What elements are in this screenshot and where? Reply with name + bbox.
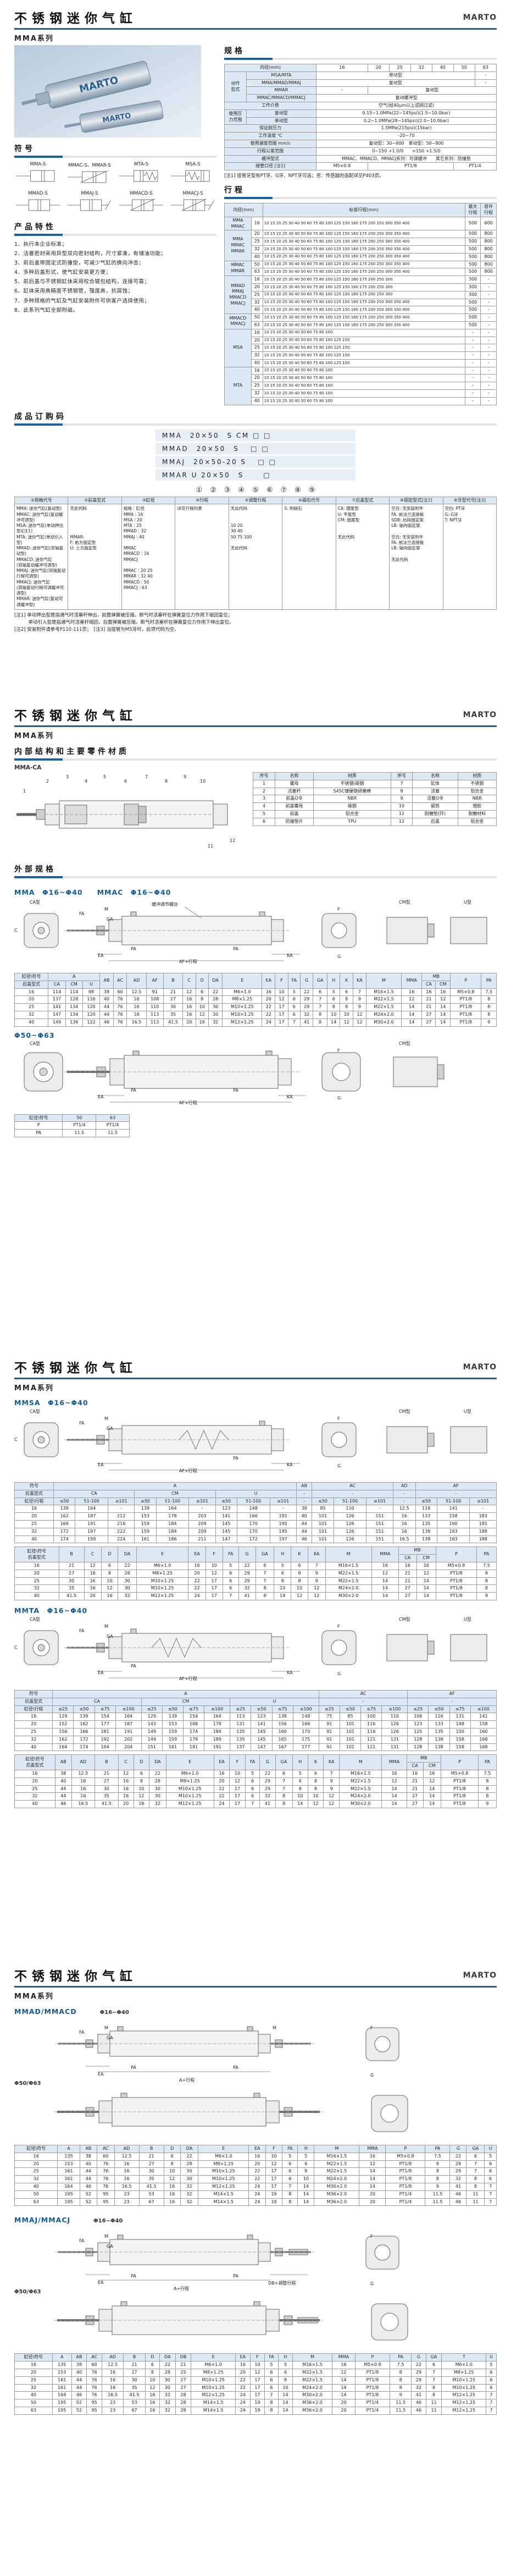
table-header-cell: ≤50	[135, 1498, 156, 1505]
table-cell: 16	[15, 1505, 54, 1513]
table-cell: 500	[465, 314, 481, 322]
table-cell: 164	[204, 1713, 230, 1721]
table-cell: 5	[274, 1562, 291, 1570]
table-cell: M22×1.5	[340, 1785, 382, 1793]
table-cell: 16	[71, 1777, 95, 1785]
table-cell: 16	[145, 2399, 159, 2407]
table-cell: 138	[415, 1535, 437, 1543]
ordering-title: 成品订购码	[14, 411, 497, 422]
table-cell: 197	[75, 1528, 108, 1535]
table-header-cell: 缸径\符号	[15, 973, 48, 981]
symbol-label: MSA-S	[169, 162, 216, 167]
table-cell: -	[465, 344, 481, 352]
table-cell: 详见行程列表	[175, 504, 229, 610]
table-cell: 14	[359, 2168, 386, 2176]
cylinder-symbol-icon	[170, 197, 216, 213]
dim-label: PA	[233, 1088, 238, 1093]
table-cell: 10 15 20 25 30 40 50 60 75 80 100 125 15…	[263, 337, 465, 344]
table-cell: M5×0.8	[316, 163, 368, 170]
table-header-cell: G	[412, 2354, 426, 2362]
table-cell: 16	[422, 988, 436, 996]
dim-label: CM型	[399, 899, 410, 905]
table-cell: 22	[235, 2376, 250, 2384]
table-cell: 12	[401, 996, 421, 1004]
table-cell: 158	[437, 1513, 470, 1521]
table-cell: 17	[266, 2168, 282, 2176]
table-cell: 16	[127, 996, 146, 1004]
table-cell: 10 15 20 25 30 40 50 60 75 80 100 125 15…	[263, 283, 465, 291]
table-cell: MMAC、MMACD、MMACJ系列：可调缓冲 其它系列：防撞垫	[316, 155, 497, 163]
dim-label: G	[337, 1463, 341, 1468]
big-bore-drawing: CA型EAAF+行程KAPAPAFGCM型	[14, 1041, 497, 1112]
table-cell: 29	[300, 1004, 313, 1011]
table-cell: 16.5	[102, 2392, 123, 2399]
table-cell: M16×1.5	[366, 988, 401, 996]
table-cell: 158	[449, 1743, 470, 1751]
table-row: 4041.5201632M12×1.2524177418141212M30×2.…	[15, 1593, 497, 1600]
table-row: MMA MMAC MMAR2010 15 20 25 30 40 50 60 7…	[225, 230, 497, 238]
table-header-cell: F	[230, 1755, 245, 1770]
table-cell: 25	[15, 1004, 48, 1011]
table-cell: M10×1.25	[442, 2376, 486, 2384]
table-row: 2510 15 20 25 30 40 50 60 75 80 100 125 …	[225, 344, 497, 352]
dim-label: KA	[287, 1670, 293, 1675]
table-cell: 10 15 20 25 30 40 50 60 75 80 100 125 15…	[263, 230, 465, 238]
table-cell: 25	[251, 382, 263, 390]
table-row: 32441635161230M10×1.2522176328101012M24×…	[15, 1793, 497, 1801]
table-header-cell: ≤25	[230, 1705, 251, 1713]
table-cell: 螺母	[275, 780, 313, 788]
table-cell: 17	[230, 1793, 245, 1801]
table-cell: 161	[135, 1535, 156, 1543]
table-cell: 17	[230, 1785, 245, 1793]
table-cell: -	[465, 375, 481, 382]
dim-label: AF+行程	[179, 1468, 197, 1474]
table-cell: M16×1.5	[293, 2362, 332, 2369]
table-cell: 110	[146, 1004, 163, 1011]
page-title: 不锈钢迷你气缸	[14, 1357, 497, 1376]
stroke-section: 行程 内径(mm)标准行程(mm)最大 行程容许 行程MMA MMAC1610 …	[224, 184, 497, 405]
table-cell: 17	[275, 1011, 288, 1019]
table-cell: 38	[296, 1505, 312, 1513]
table-cell: 53	[139, 2190, 164, 2198]
table-cell: 12	[275, 996, 288, 1004]
table-cell: 9	[481, 1019, 497, 1026]
table-cell: 7.5	[425, 2153, 450, 2160]
digit-item: ⑨	[309, 486, 315, 494]
table-header-cell: CM	[436, 981, 451, 988]
digit-item: ④	[238, 486, 245, 494]
table-cell: 4	[253, 803, 275, 811]
table-header-cell: KA	[353, 973, 366, 989]
table-cell: 8	[275, 1793, 292, 1801]
dim-label: GA	[107, 2035, 113, 2040]
table-header-cell: ≥101	[270, 1498, 296, 1505]
table-cell: 27	[163, 996, 182, 1004]
cylinder-symbol-icon	[15, 197, 61, 213]
table-cell: 7	[324, 1770, 340, 1777]
dim-label: 4	[85, 779, 87, 784]
table-cell: 27	[422, 1011, 436, 1019]
dim-label: U型	[464, 1408, 471, 1414]
table-cell: 129	[53, 1713, 74, 1721]
table-header-cell: D	[196, 973, 208, 989]
dim-label: U型	[464, 899, 471, 905]
table-row: 4010 15 20 25 30 40 50 60 75 80 100 125 …	[225, 306, 497, 314]
table-cell: 21	[175, 2362, 191, 2369]
page-3: 不锈钢迷你气缸 MARTO MMA系列 MMSA Φ16~Φ40 CA型CFAM…	[0, 1350, 511, 1958]
table-header-cell: P	[436, 1547, 477, 1562]
table-cell: 20	[15, 1513, 54, 1521]
table-header-cell: MMACD MMACJ	[225, 314, 252, 329]
table-cell: M36×2.0	[314, 2198, 359, 2206]
feat-item: 4、多种后盖形式，使气缸安装更方便；	[14, 268, 216, 277]
table-cell: M10×1.25	[223, 1011, 262, 1019]
table-cell: 20	[183, 1019, 196, 1026]
table-cell: 8	[298, 2168, 314, 2176]
data-table: 符号AABACADAF后盖型式CACMU----缸径\行程≤5051-100≥1…	[14, 1482, 497, 1543]
table-cell: PT1/8	[436, 1570, 477, 1577]
specs-note: [注1] 接管牙型有PT牙、G牙、NPT牙可选；另：传感器的选配详见P403页。	[224, 172, 497, 179]
table-header-cell: 缸径\符号	[15, 2145, 58, 2153]
table-cell: 40	[251, 306, 263, 314]
table-cell: 6	[245, 1793, 260, 1801]
mmad-outline-drawing: FAMGAPAPAEAA+行程MFG	[14, 2018, 497, 2078]
table-header-cell: MMA/MMAD/MMAJ	[246, 79, 316, 87]
table-cell: 149	[48, 1019, 65, 1026]
table-cell: PT1/4	[386, 2198, 425, 2206]
symbol-label: MMA-S	[14, 162, 62, 167]
table-cell: 40	[251, 253, 263, 261]
msa-dim-table-2: 缸径\符号 后盖型式BCDDAEEAFFAGGAHKKAMMMAMBPPACAC…	[14, 1546, 497, 1600]
table-cell: 6	[245, 1785, 260, 1793]
table-header-cell: 缸径\符号 后盖型式	[15, 1755, 55, 1770]
mmaj-label: MMAJ/MMACJ	[14, 2216, 70, 2224]
table-cell: 149	[141, 1728, 162, 1736]
table-header-cell: FA	[282, 2145, 298, 2153]
page-2: 不锈钢迷你气缸 MARTO MMA系列 内部结构和主要零件材质 MMA-CA	[0, 697, 511, 1350]
table-cell: 5	[282, 2153, 298, 2160]
data-table: 缸径\符号 后盖型式BCDDAEEAFFAGGAHKKAMMMAMBPPACAC…	[14, 1546, 497, 1600]
table-header-cell: 后盖型式	[15, 1698, 53, 1705]
table-cell: 9	[425, 2183, 450, 2190]
table-cell: -	[465, 397, 481, 405]
table-cell: 44	[71, 2384, 87, 2392]
table-cell: 101	[312, 1520, 334, 1528]
table-cell: 7.5	[390, 2362, 411, 2369]
table-cell: 145	[251, 1728, 272, 1736]
table-cell: M30×2.0	[340, 1801, 382, 1808]
symbol-label: MMACJ-S	[169, 191, 216, 196]
dim-label: 7	[145, 774, 148, 779]
table-cell: 16	[316, 64, 368, 72]
table-cell: 41	[412, 2392, 426, 2399]
table-cell: -	[465, 352, 481, 360]
table-cell: 131	[382, 1736, 408, 1743]
table-cell: 16	[164, 2183, 180, 2190]
table-row: 3216144761635123027M10×1.252217610M24×2.…	[15, 2384, 497, 2392]
digit-item: ⑧	[295, 486, 301, 494]
table-cell: 6	[134, 1770, 149, 1777]
table-cell: 14	[332, 2384, 355, 2392]
outline-drawing-icon	[14, 1041, 495, 1112]
table-cell: 21	[407, 1777, 423, 1785]
table-cell: 209	[189, 1520, 215, 1528]
table-cell: 91	[319, 1736, 340, 1743]
table-cell: PT1/8	[436, 1577, 477, 1585]
table-cell: 29	[260, 1785, 275, 1793]
table-cell: 148	[237, 1505, 270, 1513]
table-cell: 16.5	[114, 2183, 139, 2190]
table-cell: 20	[118, 1801, 134, 1808]
table-header-cell: D	[134, 1755, 149, 1770]
table-cell: -	[481, 337, 497, 344]
table-cell: 12	[324, 1801, 340, 1808]
table-cell: 28	[180, 2160, 198, 2168]
table-cell: 11	[426, 2407, 442, 2414]
table-header-cell: ≤25	[408, 1705, 429, 1713]
table-cell: 170	[237, 1520, 270, 1528]
table-header-cell: 50	[63, 1114, 96, 1122]
table-cell: 10 15 20 25 30 40 50 60 75 80 100 125 15…	[263, 344, 465, 352]
table-cell: 17	[275, 1004, 288, 1011]
table-header-cell: 51-100	[75, 1498, 108, 1505]
table-cell: 27	[175, 2384, 191, 2392]
table-cell: 12	[391, 818, 413, 825]
table-cell: 101	[340, 1728, 360, 1736]
table-header-cell: E	[136, 1547, 188, 1562]
symbol-label: MMAD-S	[14, 191, 62, 196]
mta-size-label: MMTA Φ16~Φ40	[14, 1605, 497, 1615]
table-cell: 172	[54, 1528, 75, 1535]
feat-item: 7、多种规格的气缸及气缸安装附件可供客户选择使用；	[14, 296, 216, 306]
table-cell: 300	[465, 276, 481, 284]
external-dims-section: 外部规格 MMA Φ16~Φ40 MMAC Φ16~Φ40	[14, 863, 497, 1137]
table-cell: 32	[15, 1793, 55, 1801]
table-cell: 14	[359, 2176, 386, 2183]
table-cell: 116	[429, 1713, 449, 1721]
table-cell: M12×1.25	[191, 2392, 236, 2399]
table-cell: 126	[334, 1528, 366, 1535]
table-cell: 216	[108, 1520, 135, 1528]
table-cell: 14	[298, 2198, 314, 2206]
table-cell: 153	[162, 1721, 183, 1729]
table-header-cell: -	[296, 1498, 312, 1505]
table-cell: 17	[266, 2183, 282, 2190]
table-cell: 8	[340, 996, 353, 1004]
table-row: MMACD MMACJ5010 15 20 25 30 40 50 60 75 …	[225, 314, 497, 322]
table-cell: 76	[97, 2168, 114, 2176]
table-cell: -	[481, 276, 497, 284]
table-header-cell: E	[223, 973, 262, 989]
table-cell: 35	[163, 1011, 182, 1019]
table-cell: 21	[422, 1004, 436, 1011]
table-cell: 46	[450, 2190, 466, 2198]
table-cell: 10 15 20 25 30 40 50 60 75 80 100 125 15…	[263, 359, 465, 367]
table-cell: 38	[80, 2153, 97, 2160]
table-cell: 17	[205, 1585, 223, 1593]
title-rule	[14, 28, 497, 30]
table-cell: 27	[398, 1593, 416, 1600]
table-row: MMA/MMAD/MMAJ复动型-	[225, 79, 497, 87]
table-cell: 38	[100, 988, 114, 996]
table-row: 201534076162782825M8×1.25201266M22×1.512…	[15, 2369, 497, 2376]
table-header-cell: AB	[71, 2354, 87, 2362]
table-cell: 9	[308, 1577, 325, 1585]
table-cell: M22×1.5	[293, 2369, 332, 2376]
table-cell: 10 15 20 25 30 40 50 60 75 80 100 125 15…	[263, 245, 465, 253]
table-cell: 6	[223, 1570, 238, 1577]
table-cell: 160	[470, 1728, 496, 1736]
table-cell: 63	[251, 268, 263, 276]
table-cell: 30	[180, 2176, 198, 2183]
table-cell: 179	[184, 1736, 204, 1743]
table-cell: 17	[275, 1019, 288, 1026]
table-cell: 139	[54, 1505, 75, 1513]
table-cell: 159	[135, 1520, 156, 1528]
table-cell: 76	[113, 1011, 127, 1019]
internal-structure-section: 内部结构和主要零件材质 MMA-CA	[14, 746, 497, 858]
table-cell: 128	[408, 1743, 429, 1751]
table-cell: 30	[208, 1004, 222, 1011]
table-cell: 22	[238, 1562, 255, 1570]
table-cell: M10×1.25	[198, 2176, 249, 2183]
table-cell: 0~150 +1.0/0 >150 +1.5/0	[316, 147, 497, 155]
mma-outline-drawing: CA型C缓冲调节螺丝FAMGAPAPAEAAF+行程KAFGCM型U型	[14, 899, 497, 971]
section-rule	[224, 58, 497, 60]
dim-label: F	[337, 1416, 340, 1421]
table-cell: 16	[183, 996, 196, 1004]
table-cell: 6	[282, 2176, 298, 2183]
table-cell: 9	[390, 2392, 411, 2399]
table-cell: 25	[251, 291, 263, 299]
table-cell: 16	[183, 1011, 196, 1019]
table-cell: 7	[282, 2183, 298, 2190]
table-cell: M24×2.0	[325, 1585, 371, 1593]
table-cell: M12×1.25	[442, 2399, 486, 2407]
table-cell: M24×2.0	[366, 1011, 401, 1019]
table-cell: M22×1.5	[325, 1577, 371, 1585]
table-cell: 166	[237, 1513, 270, 1521]
table-cell: M8×1.25	[136, 1570, 188, 1577]
table-row: 3210 15 20 25 30 40 50 60 75 80 100 125 …	[225, 352, 497, 360]
table-row: 3216217219220214915917918913514516517591…	[15, 1736, 497, 1743]
table-header-cell: ≤50	[415, 1498, 437, 1505]
table-cell: PT1/4	[63, 1122, 96, 1130]
table-cell: 10 15 20 25 30 40 50 60 75 80 100 125 15…	[263, 314, 465, 322]
table-header-cell: B	[139, 2145, 164, 2153]
table-cell: 9	[308, 1570, 325, 1577]
table-cell: 30	[208, 1011, 222, 1019]
table-header-cell: B	[163, 973, 182, 989]
table-cell: -	[465, 390, 481, 398]
table-cell: -	[481, 352, 497, 360]
table-cell: 123	[215, 1505, 237, 1513]
table-cell: S: 附磁石	[282, 504, 336, 610]
table-cell: 14	[327, 1019, 340, 1026]
table-cell: 5	[265, 2362, 279, 2369]
table-header-cell: 行程公差范围	[225, 147, 316, 155]
table-cell: M30×2.0	[314, 2183, 359, 2190]
table-cell: 22	[412, 2362, 426, 2369]
table-cell: 21	[398, 1570, 416, 1577]
table-cell: 145	[251, 1736, 272, 1743]
table-cell: 195	[58, 2190, 80, 2198]
dim-label: KA	[287, 1462, 293, 1467]
table-cell: 181	[184, 1743, 204, 1751]
table-cell: 8	[101, 1570, 118, 1577]
table-header-cell: 后盖型式	[15, 1490, 54, 1498]
table-cell: 6	[486, 2369, 497, 2376]
table-header-cell: CA	[422, 981, 436, 988]
dim-label: 12	[230, 838, 235, 843]
table-cell: 188	[470, 1528, 497, 1535]
table-cell: 7	[466, 2168, 485, 2176]
table-cell: 165	[272, 1736, 293, 1743]
table-cell: 29	[450, 2160, 466, 2168]
table-cell: CA: 摆尾型 U: 平尾型 CM: 固尾型 无此代码	[336, 504, 389, 610]
table-cell: 10 15 20 25 30 40 50 60 75 80 100 125 15…	[263, 306, 465, 314]
table-cell: 40	[71, 2369, 87, 2376]
dim-label: PA	[233, 2065, 238, 2070]
table-row: 1611411498386012.5912112622M6×1.01610522…	[15, 988, 497, 996]
table-cell: 复动型	[368, 87, 496, 95]
table-row: 5019552952353163228M14×1.52419814M36×2.0…	[15, 2399, 497, 2407]
dim-label: CA型	[30, 1616, 40, 1622]
table-cell: 153	[52, 2369, 71, 2376]
table-cell: 16	[101, 1593, 118, 1600]
table-row: 2515616618119114915917418413514516017091…	[15, 1728, 497, 1736]
mma-size-label: MMA Φ16~Φ40	[14, 887, 83, 897]
table-cell: M10×1.25	[166, 1785, 214, 1793]
dim-label: GA	[107, 1634, 113, 1639]
table-cell: 197	[270, 1535, 296, 1543]
table-cell: 8	[476, 1577, 496, 1585]
table-header-cell: A	[54, 1483, 297, 1490]
table-header-cell: 后盖型式	[15, 981, 48, 988]
table-cell: 12	[308, 1801, 323, 1808]
table-cell: 16	[416, 1562, 436, 1570]
table-cell: 183	[470, 1513, 497, 1521]
table-header-cell: H	[292, 1755, 308, 1770]
symbol-item: MMACJ-S	[169, 191, 216, 216]
table-cell: M16×1.5	[340, 1770, 382, 1777]
table-cell: 30	[118, 1585, 136, 1593]
brand-logo: MARTO	[463, 13, 497, 22]
title-rule	[14, 725, 497, 727]
table-header-cell: ≤100	[470, 1705, 496, 1713]
dim-label: C	[14, 928, 18, 933]
table-cell: 163	[437, 1528, 470, 1535]
table-cell: 14	[278, 2407, 292, 2414]
table-cell: 磁铁	[413, 803, 458, 811]
table-header-cell: K	[308, 1755, 323, 1770]
table-cell: 8	[275, 1801, 292, 1808]
table-row: 工作介质空气(经40μm以上滤网过滤)	[225, 102, 497, 109]
table-cell: 126	[382, 1721, 408, 1729]
table-cell: 800	[481, 261, 497, 268]
cylinder-symbol-icon	[118, 168, 164, 184]
table-cell: 98	[82, 988, 99, 996]
table-cell: 27	[124, 2369, 145, 2376]
table-cell: 116	[82, 996, 99, 1004]
table-header-cell: DA	[160, 2354, 176, 2362]
table-cell: 6	[265, 2384, 279, 2392]
table-cell: 32	[412, 2384, 426, 2392]
table-cell: 101	[312, 1535, 334, 1543]
table-cell: 24	[249, 2190, 266, 2198]
table-cell: M22×1.5	[325, 1570, 371, 1577]
